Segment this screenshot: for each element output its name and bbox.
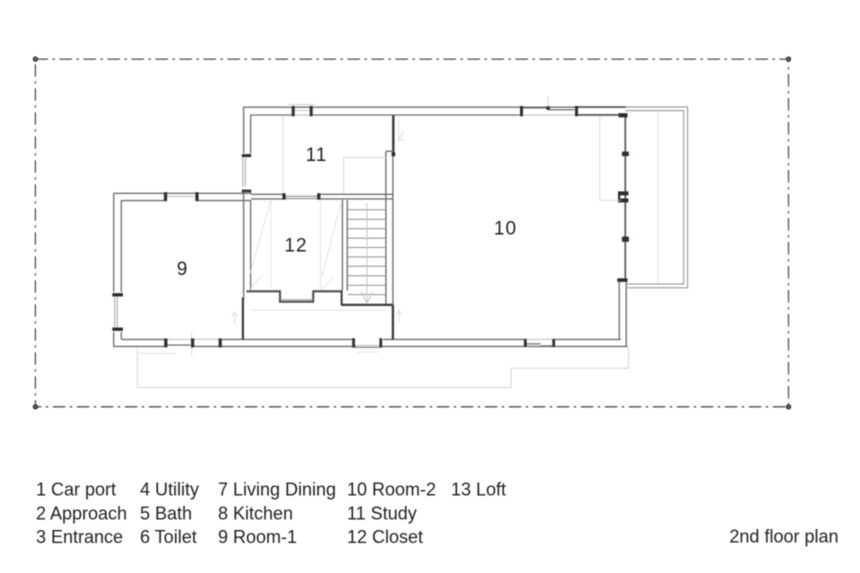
svg-text:13 Loft: 13 Loft — [451, 480, 506, 500]
svg-text:2 Approach: 2 Approach — [36, 504, 127, 524]
svg-text:8 Kitchen: 8 Kitchen — [218, 504, 293, 524]
svg-text:10 Room-2: 10 Room-2 — [347, 480, 436, 500]
svg-text:5 Bath: 5 Bath — [140, 504, 192, 524]
svg-text:9: 9 — [177, 259, 189, 280]
svg-text:7 Living Dining: 7 Living Dining — [218, 480, 336, 500]
svg-text:12: 12 — [284, 235, 307, 256]
svg-text:4 Utility: 4 Utility — [140, 480, 199, 500]
svg-text:11 Study: 11 Study — [347, 504, 417, 524]
svg-text:11: 11 — [306, 145, 328, 166]
svg-text:6 Toilet: 6 Toilet — [140, 527, 197, 547]
svg-text:10: 10 — [494, 218, 517, 239]
svg-text:2nd floor plan: 2nd floor plan — [729, 527, 838, 547]
svg-text:9 Room-1: 9 Room-1 — [218, 527, 297, 547]
svg-text:12 Closet: 12 Closet — [347, 527, 423, 547]
svg-text:3 Entrance: 3 Entrance — [36, 527, 123, 547]
svg-text:1 Car port: 1 Car port — [36, 480, 116, 500]
